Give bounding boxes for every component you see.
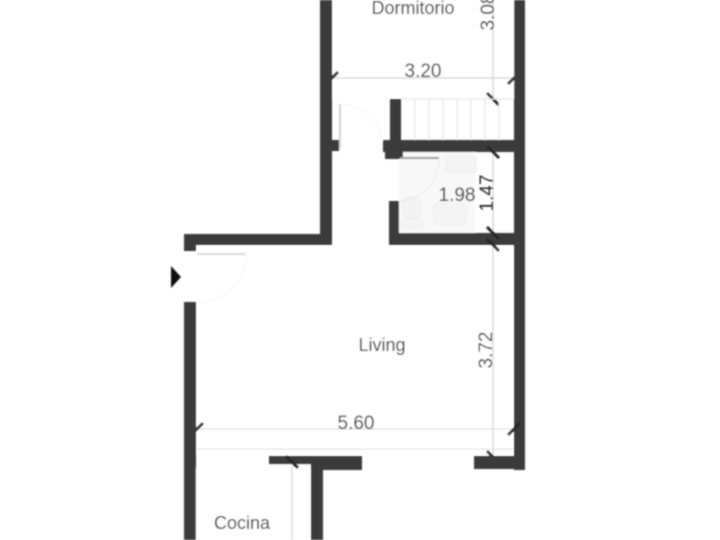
svg-text:1.47: 1.47	[477, 175, 498, 212]
svg-text:3.08: 3.08	[478, 0, 499, 30]
svg-text:3.72: 3.72	[476, 332, 497, 369]
svg-text:Living: Living	[358, 335, 405, 355]
svg-text:1.98: 1.98	[439, 185, 476, 206]
svg-text:5.60: 5.60	[338, 413, 375, 434]
svg-text:Dormitorio: Dormitorio	[371, 0, 454, 18]
svg-text:Cocina: Cocina	[214, 513, 271, 533]
svg-text:3.20: 3.20	[405, 61, 442, 82]
